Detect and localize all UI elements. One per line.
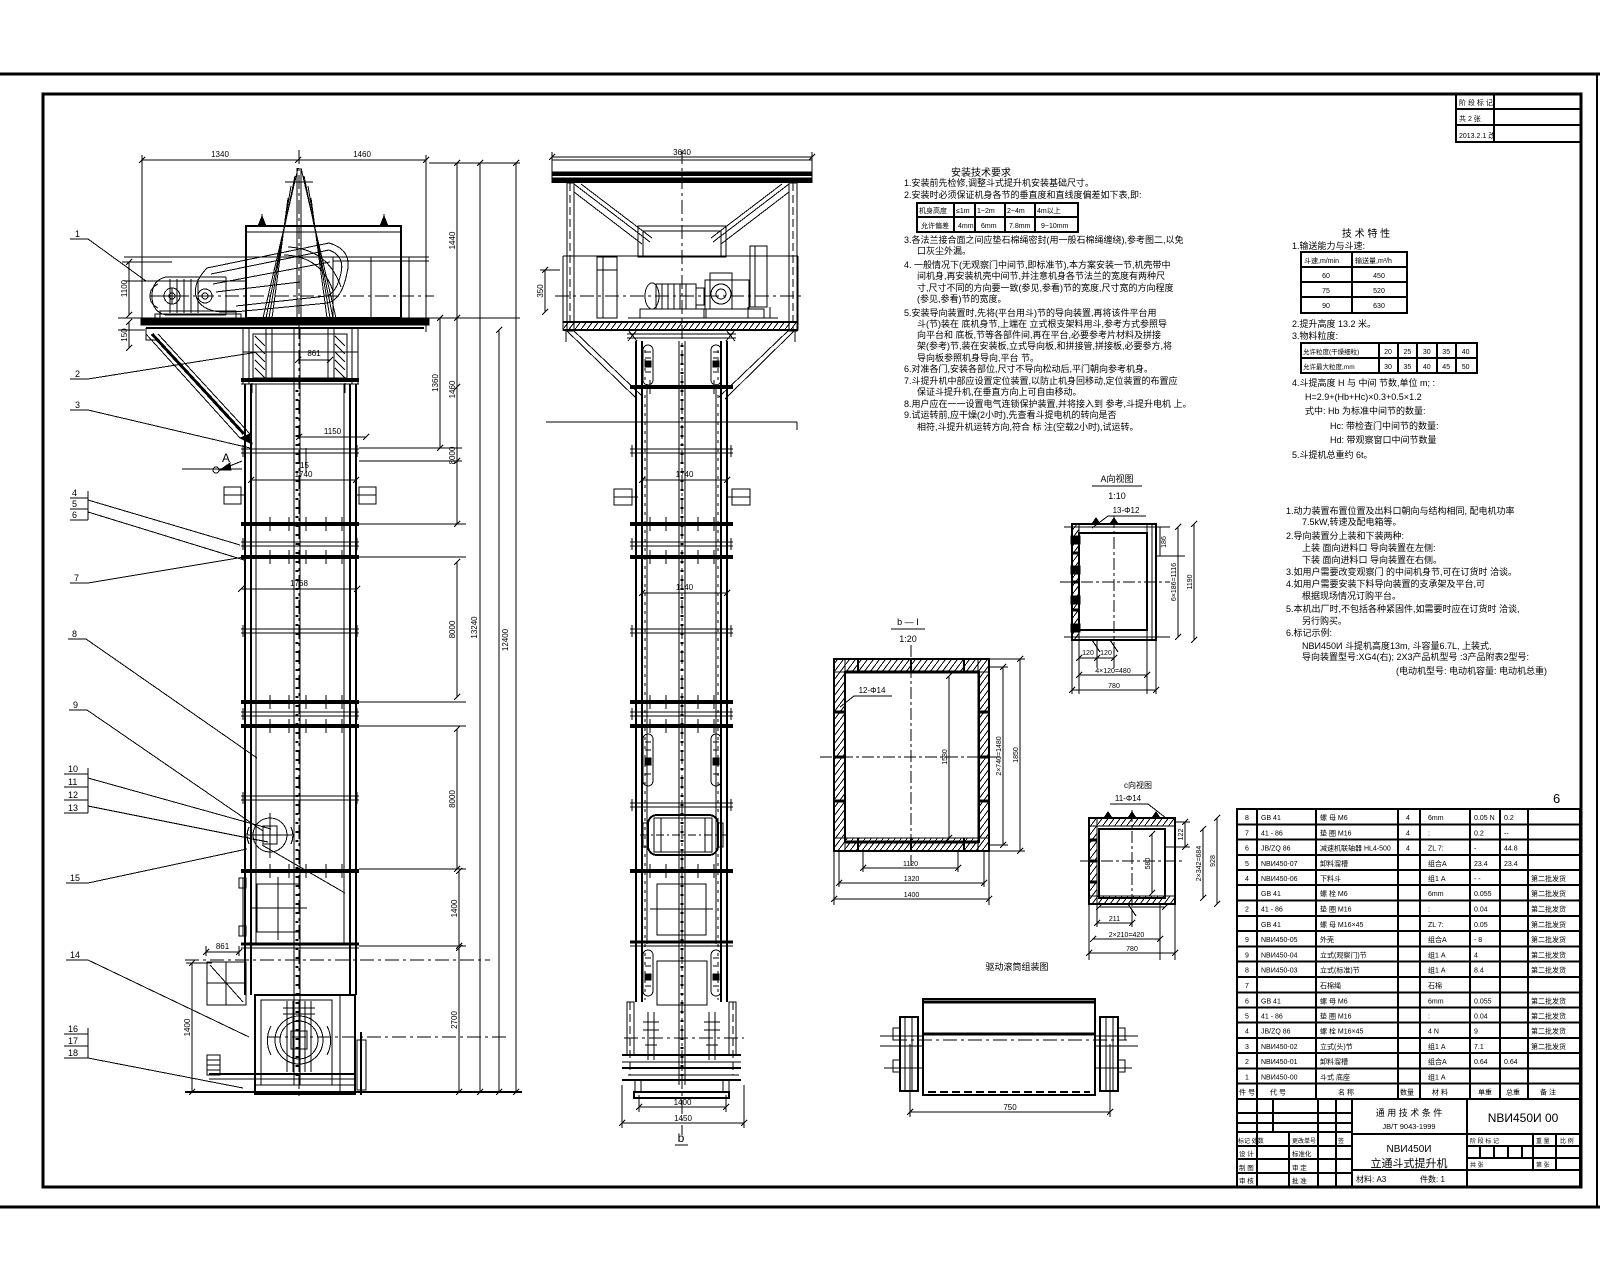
svg-text:7.8mm: 7.8mm bbox=[1009, 223, 1031, 230]
svg-text:阶 段 标 记: 阶 段 标 记 bbox=[1459, 98, 1493, 107]
svg-text:JB/ZQ 86: JB/ZQ 86 bbox=[1261, 846, 1291, 853]
svg-text:0.04: 0.04 bbox=[1474, 1013, 1488, 1020]
svg-text:阶 段 标 记: 阶 段 标 记 bbox=[1470, 1137, 1499, 1145]
svg-text:7.5kW,转速及配电箱等。: 7.5kW,转速及配电箱等。 bbox=[1302, 516, 1402, 527]
svg-text:2~4m: 2~4m bbox=[1007, 208, 1025, 215]
svg-text:8000: 8000 bbox=[448, 790, 457, 808]
svg-text:9.试运转前,应干燥(2小时),先查看斗提电机的转向是否: 9.试运转前,应干燥(2小时),先查看斗提电机的转向是否 bbox=[904, 409, 1117, 420]
svg-text:8: 8 bbox=[1245, 968, 1249, 975]
svg-text:签: 签 bbox=[1338, 1137, 1344, 1145]
svg-text:保证斗提升机,在垂直方向上可自由移动。: 保证斗提升机,在垂直方向上可自由移动。 bbox=[917, 386, 1082, 397]
svg-text:第二批发货: 第二批发货 bbox=[1531, 920, 1566, 929]
svg-text:共 张: 共 张 bbox=[1470, 1161, 1484, 1169]
svg-text:1580: 1580 bbox=[942, 749, 949, 765]
svg-text:NBИ450-07: NBИ450-07 bbox=[1261, 861, 1298, 868]
svg-text:A向视图: A向视图 bbox=[1100, 473, 1133, 484]
svg-text:1440: 1440 bbox=[448, 231, 457, 249]
svg-text:90: 90 bbox=[1322, 303, 1330, 310]
svg-text:JB/ZQ 86: JB/ZQ 86 bbox=[1261, 1029, 1291, 1036]
svg-text:13-Φ12: 13-Φ12 bbox=[1113, 506, 1140, 515]
svg-text:9: 9 bbox=[1474, 1029, 1478, 1036]
svg-text:5: 5 bbox=[1245, 1013, 1249, 1020]
svg-text:式中: Hb 为标准中间节的数量:: 式中: Hb 为标准中间节的数量: bbox=[1305, 405, 1426, 416]
svg-text:--: -- bbox=[1504, 830, 1509, 837]
svg-text:卸料溜槽: 卸料溜槽 bbox=[1320, 859, 1348, 868]
svg-text:间机身,再安装机壳中间节,并注意机身各节法兰的宽度有两种尺: 间机身,再安装机壳中间节,并注意机身各节法兰的宽度有两种尺 bbox=[917, 270, 1165, 281]
svg-text:1320: 1320 bbox=[904, 876, 920, 883]
svg-text:75: 75 bbox=[1322, 288, 1330, 295]
svg-text:580: 580 bbox=[1145, 858, 1152, 870]
svg-text:4mm: 4mm bbox=[958, 223, 974, 230]
svg-text:下装 面向进料口 导向装置在右侧。: 下装 面向进料口 导向装置在右侧。 bbox=[1302, 554, 1442, 565]
svg-text:0.64: 0.64 bbox=[1474, 1059, 1488, 1066]
svg-text:H=2.9+(Hb+Hc)×0.3+0.5×1.2: H=2.9+(Hb+Hc)×0.3+0.5×1.2 bbox=[1305, 392, 1422, 402]
svg-text:≤1m: ≤1m bbox=[956, 208, 970, 215]
svg-text:外壳: 外壳 bbox=[1320, 935, 1334, 944]
svg-text:30: 30 bbox=[1384, 364, 1392, 371]
svg-text:立式(标准)节: 立式(标准)节 bbox=[1320, 966, 1360, 975]
svg-text:b — Ⅰ: b — Ⅰ bbox=[897, 617, 919, 627]
svg-text:口灰尘外漏。: 口灰尘外漏。 bbox=[917, 245, 971, 256]
svg-text:4: 4 bbox=[1406, 846, 1410, 853]
svg-text:450: 450 bbox=[1373, 273, 1385, 280]
svg-text:1400: 1400 bbox=[450, 899, 459, 917]
svg-text:7: 7 bbox=[1245, 830, 1249, 837]
svg-text:0.04: 0.04 bbox=[1474, 907, 1488, 914]
svg-text:A: A bbox=[222, 451, 230, 465]
svg-text:1400: 1400 bbox=[904, 892, 920, 899]
svg-text:5: 5 bbox=[72, 499, 77, 509]
svg-text:35: 35 bbox=[1442, 349, 1450, 356]
svg-text:30: 30 bbox=[1423, 349, 1431, 356]
svg-text:6: 6 bbox=[72, 510, 77, 520]
svg-text:NBИ450-06: NBИ450-06 bbox=[1261, 876, 1298, 883]
svg-text:组合A: 组合A bbox=[1428, 1057, 1447, 1066]
svg-text:JB/T 9043-1999: JB/T 9043-1999 bbox=[1382, 1122, 1435, 1131]
svg-text:立式(观察门)节: 立式(观察门)节 bbox=[1320, 950, 1367, 959]
svg-text:1120: 1120 bbox=[903, 861, 918, 868]
svg-text:1360: 1360 bbox=[431, 374, 440, 392]
svg-text:第二批发货: 第二批发货 bbox=[1531, 935, 1566, 944]
svg-text:组1 A: 组1 A bbox=[1428, 874, 1446, 883]
svg-text:第 张: 第 张 bbox=[1536, 1161, 1550, 1169]
svg-text:第二批发货: 第二批发货 bbox=[1531, 996, 1566, 1005]
svg-text:组1 A: 组1 A bbox=[1428, 1073, 1446, 1082]
svg-text:向平台和 底板,节等各部件间,再在平台,必要参考片材料及拼: 向平台和 底板,节等各部件间,再在平台,必要参考片材料及拼接 bbox=[917, 329, 1161, 340]
svg-text::: : bbox=[1428, 830, 1430, 837]
svg-text:11: 11 bbox=[68, 777, 77, 787]
svg-text:5.安装导向装置时,先将(平台用斗)节的导向装置,再将该件平: 5.安装导向装置时,先将(平台用斗)节的导向装置,再将该件平台用 bbox=[904, 307, 1157, 318]
svg-text:比 例: 比 例 bbox=[1560, 1137, 1574, 1145]
svg-text:组合A: 组合A bbox=[1428, 935, 1447, 944]
svg-text:减速机联轴器 HL4-500: 减速机联轴器 HL4-500 bbox=[1320, 844, 1391, 853]
svg-text:6: 6 bbox=[1245, 998, 1249, 1005]
svg-text:斗速,m/min: 斗速,m/min bbox=[1304, 257, 1339, 265]
svg-text:4.斗提高度 H 与 中间 节数,单位 m; :: 4.斗提高度 H 与 中间 节数,单位 m; : bbox=[1292, 377, 1435, 388]
svg-text:8: 8 bbox=[72, 629, 77, 639]
svg-text:GB 41: GB 41 bbox=[1261, 998, 1281, 1005]
svg-text:立式(头)节: 立式(头)节 bbox=[1320, 1042, 1353, 1051]
svg-text:卸料溜槽: 卸料溜槽 bbox=[1320, 1057, 1348, 1066]
svg-text:2: 2 bbox=[1245, 1059, 1249, 1066]
svg-text:第二批发货: 第二批发货 bbox=[1531, 889, 1566, 898]
svg-text:5.斗提机总重约 6t。: 5.斗提机总重约 6t。 bbox=[1292, 449, 1373, 460]
svg-text:12-Φ14: 12-Φ14 bbox=[859, 686, 886, 695]
svg-text:1:20: 1:20 bbox=[899, 634, 917, 644]
svg-text:13240: 13240 bbox=[470, 616, 479, 639]
svg-text:44.8: 44.8 bbox=[1504, 846, 1518, 853]
svg-text:Hd: 带观察窗口中间节数量: Hd: 带观察窗口中间节数量 bbox=[1330, 434, 1437, 445]
svg-text:导向装置型号:XG4(右); 2X3产品机型号 :3产品附表: 导向装置型号:XG4(右); 2X3产品机型号 :3产品附表2型号: bbox=[1302, 651, 1529, 662]
svg-text:1.安装前先检修,调整斗式提升机安装基础尺寸。: 1.安装前先检修,调整斗式提升机安装基础尺寸。 bbox=[904, 177, 1094, 188]
svg-text:Hc: 带检查门中间节的数量:: Hc: 带检查门中间节的数量: bbox=[1330, 420, 1439, 431]
svg-text:17: 17 bbox=[68, 1036, 78, 1046]
svg-text:第二批发货: 第二批发货 bbox=[1531, 1011, 1566, 1020]
svg-text:122: 122 bbox=[1178, 829, 1185, 841]
svg-text:NBИ450И 00: NBИ450И 00 bbox=[1488, 1111, 1559, 1125]
svg-text:120: 120 bbox=[1082, 650, 1094, 657]
svg-text:211: 211 bbox=[1109, 916, 1120, 923]
svg-text:6: 6 bbox=[1553, 791, 1560, 806]
svg-text:1460: 1460 bbox=[448, 380, 457, 398]
svg-text:重 量: 重 量 bbox=[1536, 1137, 1550, 1145]
svg-text:1100: 1100 bbox=[120, 279, 129, 297]
svg-text:材料: A3: 材料: A3 bbox=[1356, 1174, 1387, 1184]
svg-text:通 用 技 术 条 件: 通 用 技 术 条 件 bbox=[1376, 1107, 1443, 1118]
svg-text:4. 一般情况下(无观察门中间节,即标准节),本方案安装一: 4. 一般情况下(无观察门中间节,即标准节),本方案安装一节,机壳带中 bbox=[904, 259, 1171, 270]
svg-text:14: 14 bbox=[70, 950, 80, 960]
svg-text:7: 7 bbox=[1245, 983, 1249, 990]
svg-text:组1 A: 组1 A bbox=[1428, 966, 1446, 975]
svg-text:第二批发货: 第二批发货 bbox=[1531, 905, 1566, 914]
svg-text:(电动机型号: 电动机容量: 电动机总重): (电动机型号: 电动机容量: 电动机总重) bbox=[1396, 665, 1547, 676]
svg-text:斗(节)装在 底机身节,上端在 立式根支架料用斗,参考方: 斗(节)装在 底机身节,上端在 立式根支架料用斗,参考方式参照导 bbox=[917, 318, 1167, 329]
svg-text:1450: 1450 bbox=[674, 1114, 692, 1123]
svg-text:允许粒度(干燥细粒): 允许粒度(干燥细粒) bbox=[1303, 347, 1359, 356]
svg-text:驱动滚筒组装图: 驱动滚筒组装图 bbox=[985, 961, 1048, 972]
svg-text:13: 13 bbox=[68, 803, 78, 813]
svg-text:1400: 1400 bbox=[183, 1018, 192, 1036]
svg-text:25: 25 bbox=[1404, 349, 1412, 356]
svg-text:5.本机出厂时,不包括各种紧固件,如需要时应在订货时 洽谈: 5.本机出厂时,不包括各种紧固件,如需要时应在订货时 洽谈, bbox=[1286, 603, 1520, 614]
svg-text:9: 9 bbox=[73, 700, 78, 710]
svg-text:41 - 86: 41 - 86 bbox=[1261, 830, 1283, 837]
svg-text:ZL 7:: ZL 7: bbox=[1428, 922, 1444, 929]
svg-text:9: 9 bbox=[1245, 937, 1249, 944]
svg-text:总重: 总重 bbox=[1506, 1088, 1520, 1097]
svg-text:NBИ450-02: NBИ450-02 bbox=[1261, 1044, 1298, 1051]
svg-text:输送量,m³/h: 输送量,m³/h bbox=[1355, 256, 1392, 265]
svg-text:861: 861 bbox=[307, 349, 321, 358]
svg-text:6mm: 6mm bbox=[981, 223, 997, 230]
svg-text:NBИ450-05: NBИ450-05 bbox=[1261, 937, 1298, 944]
svg-text:GB 41: GB 41 bbox=[1261, 815, 1281, 822]
svg-text:10: 10 bbox=[68, 764, 78, 774]
svg-text:1.动力装置布置位置及出料口朝向与结构相同, 配电机功: 1.动力装置布置位置及出料口朝向与结构相同, 配电机功率 bbox=[1286, 505, 1515, 516]
svg-text:组1 A: 组1 A bbox=[1428, 950, 1446, 959]
svg-text:4.如用户需要安装下料导向装置的支承架及平台,可: 4.如用户需要安装下料导向装置的支承架及平台,可 bbox=[1286, 578, 1485, 589]
svg-text:4×120=480: 4×120=480 bbox=[1095, 668, 1131, 675]
svg-text:立通斗式提升机: 立通斗式提升机 bbox=[1371, 1156, 1448, 1170]
svg-text:垫 圈 M16: 垫 圈 M16 bbox=[1320, 828, 1352, 837]
svg-text:6mm: 6mm bbox=[1428, 891, 1444, 898]
svg-text:NBИ450И 斗提机高度13m, 斗容量6.7L, 上装式: NBИ450И 斗提机高度13m, 斗容量6.7L, 上装式, bbox=[1302, 640, 1491, 651]
svg-text:备 注: 备 注 bbox=[1540, 1088, 1556, 1097]
svg-text:b: b bbox=[678, 1131, 685, 1145]
svg-text:架(参考)节,装在安装板,立式导向板,和拼接管,拼接板,必要: 架(参考)节,装在安装板,立式导向板,和拼接管,拼接板,必要参方,将 bbox=[917, 340, 1172, 351]
svg-text:4: 4 bbox=[1245, 1029, 1249, 1036]
svg-text:相符,斗提升机运转方向,符合 标 注(空载2小时),试运转: 相符,斗提升机运转方向,符合 标 注(空载2小时),试运转。 bbox=[917, 421, 1139, 432]
svg-text:780: 780 bbox=[1126, 946, 1138, 953]
svg-text:9~10mm: 9~10mm bbox=[1041, 223, 1069, 230]
svg-text:41 - 86: 41 - 86 bbox=[1261, 907, 1283, 914]
svg-text:16: 16 bbox=[68, 1024, 78, 1034]
svg-text:1740: 1740 bbox=[676, 470, 694, 479]
svg-text:6×186=1116: 6×186=1116 bbox=[1171, 563, 1178, 601]
svg-text:允许最大粒度,mm: 允许最大粒度,mm bbox=[1303, 362, 1355, 371]
svg-text:630: 630 bbox=[1373, 303, 1385, 310]
svg-text:审 核: 审 核 bbox=[1239, 1176, 1254, 1185]
svg-text:11-Φ14: 11-Φ14 bbox=[1115, 794, 1142, 803]
svg-text:4 N: 4 N bbox=[1428, 1029, 1439, 1036]
svg-text:350: 350 bbox=[536, 284, 545, 298]
svg-text:更改单号: 更改单号 bbox=[1292, 1137, 1316, 1145]
svg-text:2×210=420: 2×210=420 bbox=[1109, 932, 1145, 939]
svg-text:(参见,参看)节的宽度。: (参见,参看)节的宽度。 bbox=[917, 293, 1007, 304]
svg-text:1:10: 1:10 bbox=[1108, 491, 1126, 501]
svg-text:6: 6 bbox=[1245, 846, 1249, 853]
svg-text:制 图: 制 图 bbox=[1239, 1163, 1254, 1172]
svg-text:GB 41: GB 41 bbox=[1261, 922, 1281, 929]
svg-text:4m以上: 4m以上 bbox=[1037, 206, 1061, 215]
svg-text:6.标记示例:: 6.标记示例: bbox=[1286, 627, 1332, 638]
svg-text:第二批发货: 第二批发货 bbox=[1531, 966, 1566, 975]
svg-text:60: 60 bbox=[1322, 273, 1330, 280]
svg-text:186: 186 bbox=[1161, 536, 1168, 548]
svg-text::: : bbox=[1428, 1013, 1430, 1020]
svg-text:8: 8 bbox=[1245, 815, 1249, 822]
svg-text:- -: - - bbox=[1474, 876, 1481, 883]
svg-text:4: 4 bbox=[1245, 876, 1249, 883]
svg-text:允许偏差: 允许偏差 bbox=[921, 221, 949, 230]
svg-text:代 号: 代 号 bbox=[1270, 1088, 1286, 1097]
svg-text:名 称: 名 称 bbox=[1338, 1088, 1354, 1097]
svg-text:40: 40 bbox=[1423, 364, 1431, 371]
svg-text:共 2 张: 共 2 张 bbox=[1459, 114, 1481, 123]
svg-text:螺 母 M6: 螺 母 M6 bbox=[1320, 813, 1348, 822]
svg-text:4: 4 bbox=[1406, 830, 1410, 837]
svg-text:- 8: - 8 bbox=[1474, 937, 1482, 944]
svg-text:组合A: 组合A bbox=[1428, 859, 1447, 868]
svg-text:2.导向装置分上装和下装两种:: 2.导向装置分上装和下装两种: bbox=[1286, 530, 1404, 541]
svg-text:861: 861 bbox=[216, 942, 230, 951]
svg-text:NBИ450-01: NBИ450-01 bbox=[1261, 1059, 1298, 1066]
svg-text:件数: 1: 件数: 1 bbox=[1420, 1174, 1445, 1184]
svg-text:-: - bbox=[1474, 846, 1477, 853]
svg-text:0.055: 0.055 bbox=[1474, 891, 1492, 898]
svg-text:下料斗: 下料斗 bbox=[1320, 874, 1341, 883]
svg-text:12400: 12400 bbox=[501, 628, 510, 651]
svg-text:0.05: 0.05 bbox=[1474, 922, 1488, 929]
svg-text:12: 12 bbox=[68, 790, 78, 800]
svg-text:2013.2.1 改: 2013.2.1 改 bbox=[1459, 131, 1495, 140]
svg-text:928: 928 bbox=[1210, 855, 1217, 867]
svg-text:50: 50 bbox=[1462, 364, 1470, 371]
svg-text:NBИ450-00: NBИ450-00 bbox=[1261, 1075, 1298, 1082]
svg-text:0.64: 0.64 bbox=[1504, 1059, 1518, 1066]
svg-text:第二批发货: 第二批发货 bbox=[1531, 874, 1566, 883]
svg-text:23.4: 23.4 bbox=[1474, 861, 1488, 868]
svg-text:1: 1 bbox=[1245, 1075, 1249, 1082]
svg-text:设 计: 设 计 bbox=[1239, 1149, 1254, 1158]
svg-text:2.安装时必须保证机身各节的垂直度和直线度偏差如下表,即:: 2.安装时必须保证机身各节的垂直度和直线度偏差如下表,即: bbox=[904, 189, 1142, 200]
svg-text:NBИ450-04: NBИ450-04 bbox=[1261, 952, 1298, 959]
svg-text:0.05 N: 0.05 N bbox=[1474, 815, 1495, 822]
svg-text:第二批发货: 第二批发货 bbox=[1531, 1027, 1566, 1036]
svg-text:1400: 1400 bbox=[674, 1098, 692, 1107]
svg-text:NBИ450И: NBИ450И bbox=[1387, 1144, 1432, 1155]
svg-text:7: 7 bbox=[74, 573, 79, 583]
svg-text:2×740=1480: 2×740=1480 bbox=[996, 736, 1003, 775]
svg-text:0.2: 0.2 bbox=[1474, 830, 1484, 837]
svg-text:上装 面向进料口 导向装置在左侧:: 上装 面向进料口 导向装置在左侧: bbox=[1302, 542, 1436, 553]
svg-text:520: 520 bbox=[1373, 288, 1385, 295]
svg-text:4: 4 bbox=[72, 488, 77, 498]
svg-text:螺 母 M16×45: 螺 母 M16×45 bbox=[1320, 920, 1363, 929]
svg-text:41 - 86: 41 - 86 bbox=[1261, 1013, 1283, 1020]
svg-text:导向板参照机身导向,平台 节。: 导向板参照机身导向,平台 节。 bbox=[917, 352, 1039, 363]
svg-text:根据现场情况订购平台。: 根据现场情况订购平台。 bbox=[1302, 590, 1401, 601]
svg-text:3: 3 bbox=[75, 400, 80, 410]
svg-text:3.各法兰接合面之间应垫石棉绳密封(用一般石棉绳缠绕),参考: 3.各法兰接合面之间应垫石棉绳密封(用一般石棉绳缠绕),参考图二,以免 bbox=[904, 234, 1184, 245]
svg-text:单重: 单重 bbox=[1478, 1088, 1492, 1097]
svg-text:8.用户应在一一设置电气连锁保护装置,并将接入到 参考,斗: 8.用户应在一一设置电气连锁保护装置,并将接入到 参考,斗提升电机 上。 bbox=[904, 398, 1192, 409]
svg-text:780: 780 bbox=[1108, 683, 1120, 690]
svg-text:7.斗提升机中部应设置定位装置,以防止机身回移动,定位装置的: 7.斗提升机中部应设置定位装置,以防止机身回移动,定位装置的布置应 bbox=[904, 375, 1178, 386]
svg-text:组1 A: 组1 A bbox=[1428, 1042, 1446, 1051]
svg-text:1768: 1768 bbox=[290, 579, 308, 588]
svg-text:第二批发货: 第二批发货 bbox=[1531, 1042, 1566, 1051]
svg-text::: : bbox=[1428, 907, 1430, 914]
svg-text:8000: 8000 bbox=[448, 620, 457, 638]
svg-text:6.对准各门,安装各部位,尺寸不导向松动后,平门朝向参考机身: 6.对准各门,安装各部位,尺寸不导向松动后,平门朝向参考机身。 bbox=[904, 363, 1153, 374]
svg-text:螺 母 M6: 螺 母 M6 bbox=[1320, 996, 1348, 1005]
svg-text:8.4: 8.4 bbox=[1474, 968, 1484, 975]
svg-text:9: 9 bbox=[1245, 952, 1249, 959]
svg-text:垫 圈 M16: 垫 圈 M16 bbox=[1320, 1011, 1352, 1020]
svg-text:2×342=684: 2×342=684 bbox=[1196, 846, 1203, 882]
svg-text:1150: 1150 bbox=[324, 427, 342, 436]
svg-text:8000: 8000 bbox=[448, 446, 457, 464]
svg-text:2: 2 bbox=[1245, 907, 1249, 914]
svg-text:第二批发货: 第二批发货 bbox=[1531, 950, 1566, 959]
svg-text:石棉: 石棉 bbox=[1428, 981, 1442, 990]
svg-text:4: 4 bbox=[1406, 815, 1410, 822]
svg-text:技 术 特 性: 技 术 特 性 bbox=[1342, 227, 1390, 240]
svg-text:20: 20 bbox=[1384, 349, 1392, 356]
svg-text:审 定: 审 定 bbox=[1292, 1163, 1307, 1172]
svg-text:6mm: 6mm bbox=[1428, 998, 1444, 1005]
svg-text:石棉绳: 石棉绳 bbox=[1320, 981, 1341, 990]
svg-text:斗式 底座: 斗式 底座 bbox=[1320, 1073, 1350, 1082]
svg-text:机身高度: 机身高度 bbox=[919, 206, 947, 215]
svg-text:1460: 1460 bbox=[353, 150, 371, 159]
svg-text:材 料: 材 料 bbox=[1432, 1088, 1448, 1097]
svg-text:6mm: 6mm bbox=[1428, 815, 1444, 822]
svg-text:4: 4 bbox=[1474, 952, 1478, 959]
svg-text:2.提升高度 13.2 米。: 2.提升高度 13.2 米。 bbox=[1292, 318, 1376, 329]
svg-text:0.055: 0.055 bbox=[1474, 998, 1492, 1005]
svg-text:标记 处数: 标记 处数 bbox=[1238, 1137, 1264, 1145]
svg-text:批 准: 批 准 bbox=[1292, 1176, 1307, 1185]
svg-text:c向视图: c向视图 bbox=[1124, 780, 1152, 790]
svg-text:NBИ450-03: NBИ450-03 bbox=[1261, 968, 1298, 975]
svg-text:1: 1 bbox=[75, 229, 80, 239]
svg-text:7.1: 7.1 bbox=[1474, 1044, 1484, 1051]
svg-text:标准化: 标准化 bbox=[1292, 1149, 1312, 1158]
svg-text:5: 5 bbox=[1245, 861, 1249, 868]
svg-text:垫 圈 M16: 垫 圈 M16 bbox=[1320, 905, 1352, 914]
svg-text:35: 35 bbox=[1404, 364, 1412, 371]
svg-text:120: 120 bbox=[1100, 650, 1112, 657]
svg-text:40: 40 bbox=[1462, 349, 1470, 356]
svg-text:15: 15 bbox=[300, 461, 309, 470]
svg-text:3.物料粒度:: 3.物料粒度: bbox=[1292, 330, 1338, 341]
svg-text:GB 41: GB 41 bbox=[1261, 891, 1281, 898]
svg-text:3.如用户需要改变观察门 的中间机身节,可在订货时 洽谈: 3.如用户需要改变观察门 的中间机身节,可在订货时 洽谈。 bbox=[1286, 566, 1517, 577]
svg-text:1.输送能力与斗速:: 1.输送能力与斗速: bbox=[1292, 240, 1365, 251]
svg-text:45: 45 bbox=[1442, 364, 1450, 371]
svg-text:ZL 7:: ZL 7: bbox=[1428, 846, 1444, 853]
svg-text:1190: 1190 bbox=[1187, 574, 1194, 589]
svg-text:件 号: 件 号 bbox=[1239, 1088, 1255, 1097]
svg-text:1740: 1740 bbox=[295, 470, 313, 479]
svg-text:2700: 2700 bbox=[450, 1011, 459, 1029]
svg-text:1340: 1340 bbox=[211, 150, 229, 159]
svg-text:15: 15 bbox=[70, 873, 80, 883]
svg-text:寸,尺寸不同的方向要一致(参见,参看)节的宽度,尺寸宽的方向: 寸,尺寸不同的方向要一致(参见,参看)节的宽度,尺寸宽的方向程度 bbox=[917, 282, 1174, 293]
svg-text:3: 3 bbox=[1245, 1044, 1249, 1051]
svg-text:0.2: 0.2 bbox=[1504, 815, 1514, 822]
svg-text:18: 18 bbox=[68, 1048, 78, 1058]
svg-text:750: 750 bbox=[1003, 1103, 1017, 1112]
svg-text:螺 栓 M6: 螺 栓 M6 bbox=[1320, 889, 1348, 898]
svg-text:1850: 1850 bbox=[1013, 747, 1020, 763]
svg-text:螺 栓 M16×45: 螺 栓 M16×45 bbox=[1320, 1027, 1363, 1036]
svg-text:1140: 1140 bbox=[676, 583, 694, 592]
svg-text:另行购买。: 另行购买。 bbox=[1302, 615, 1347, 626]
svg-text:1~2m: 1~2m bbox=[977, 208, 995, 215]
svg-text:数量: 数量 bbox=[1400, 1088, 1414, 1097]
svg-text:23.4: 23.4 bbox=[1504, 861, 1518, 868]
svg-text:2: 2 bbox=[75, 369, 80, 379]
